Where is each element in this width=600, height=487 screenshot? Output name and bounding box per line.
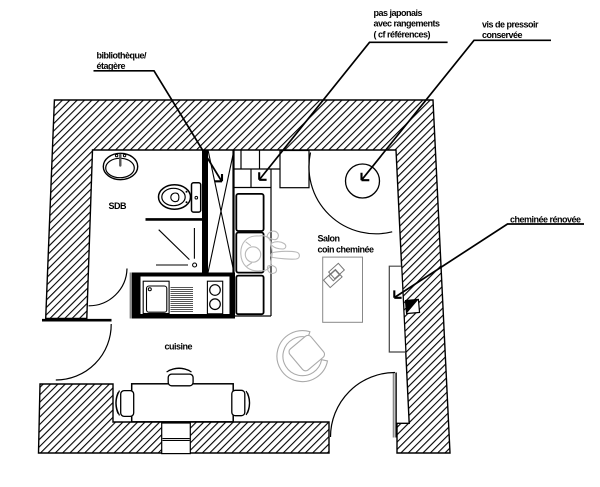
svg-text:cuisine: cuisine [165, 342, 193, 352]
svg-text:SDB: SDB [109, 201, 128, 211]
svg-text:avec rangements: avec rangements [374, 18, 441, 28]
svg-text:vis de pressoir: vis de pressoir [482, 20, 539, 30]
svg-text:( cf références): ( cf références) [374, 29, 431, 39]
svg-text:cheminée rénovée: cheminée rénovée [510, 215, 581, 225]
svg-text:coin cheminée: coin cheminée [318, 245, 375, 255]
svg-text:Salon: Salon [318, 234, 340, 244]
svg-text:pas japonais: pas japonais [374, 8, 423, 18]
svg-text:étagère: étagère [97, 61, 126, 71]
svg-text:bibliothèque/: bibliothèque/ [97, 51, 147, 61]
svg-text:conservée: conservée [482, 30, 523, 40]
